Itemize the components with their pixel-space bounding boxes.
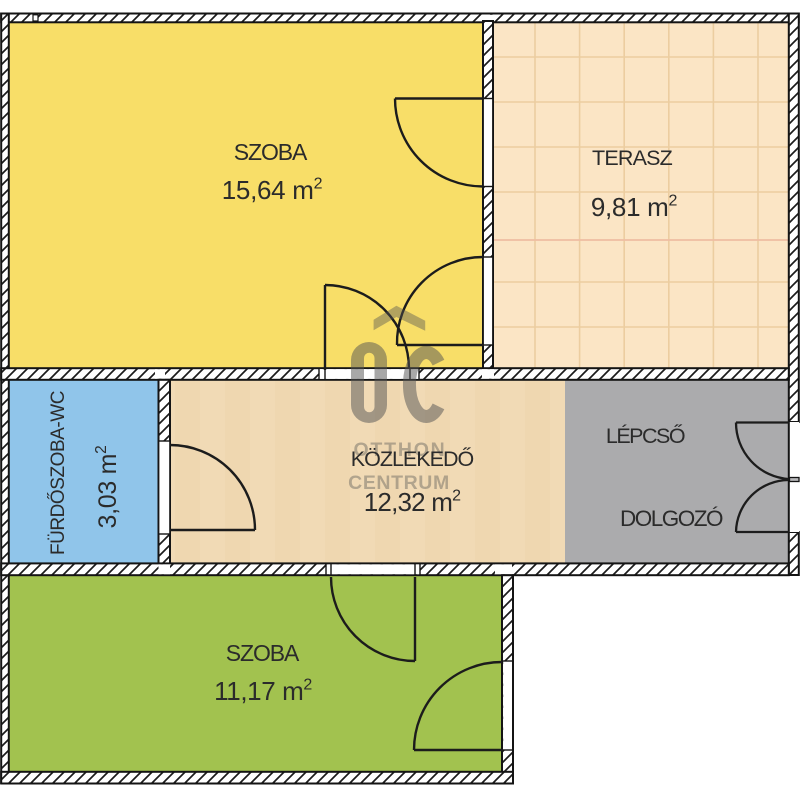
svg-text:LÉPCSŐ: LÉPCSŐ [606,423,685,448]
svg-text:11,17 m2: 11,17 m2 [214,676,312,706]
svg-text:9,81 m2: 9,81 m2 [591,192,678,222]
svg-text:15,64 m2: 15,64 m2 [222,175,323,205]
svg-text:FÜRDŐSZOBA-WC: FÜRDŐSZOBA-WC [47,391,69,555]
svg-text:SZOBA: SZOBA [234,139,308,165]
svg-text:DOLGOZÓ: DOLGOZÓ [620,506,723,531]
svg-text:TERASZ: TERASZ [592,146,673,170]
svg-text:12,32 m2: 12,32 m2 [364,487,461,517]
svg-text:KÖZLEKEDŐ: KÖZLEKEDŐ [351,446,474,471]
svg-text:SZOBA: SZOBA [226,640,300,666]
svg-text:3,03 m2: 3,03 m2 [93,446,122,529]
